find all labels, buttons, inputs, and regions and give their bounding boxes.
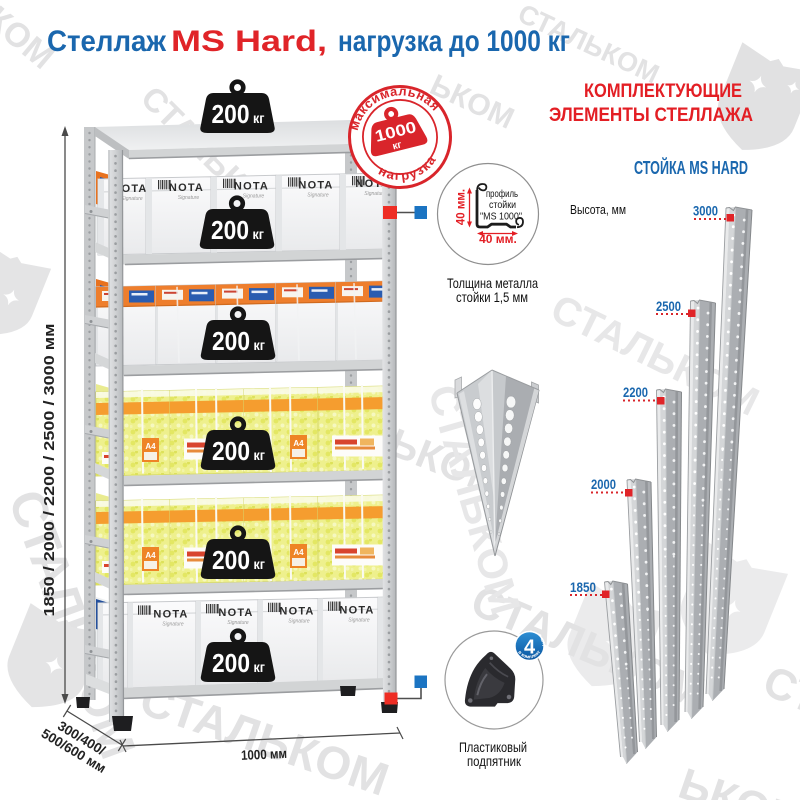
svg-text:нагрузка до 1000 кг: нагрузка до 1000 кг <box>338 25 570 58</box>
svg-text:A4: A4 <box>145 442 156 451</box>
svg-text:A4: A4 <box>293 439 304 448</box>
svg-text:A4: A4 <box>145 551 156 560</box>
svg-text:Signature: Signature <box>348 618 370 624</box>
svg-text:КОМПЛЕКТУЮЩИЕ: КОМПЛЕКТУЮЩИЕ <box>584 81 742 102</box>
svg-text:3000: 3000 <box>693 204 718 219</box>
svg-text:NOTA: NOTA <box>218 607 253 619</box>
svg-text:Высота, мм: Высота, мм <box>570 202 626 217</box>
svg-text:Signature: Signature <box>121 196 143 202</box>
svg-text:Стеллаж: Стеллаж <box>47 25 167 58</box>
svg-text:1850: 1850 <box>570 580 596 595</box>
svg-text:NOTA: NOTA <box>234 181 269 193</box>
svg-text:NOTA: NOTA <box>339 605 374 617</box>
svg-text:1000 мм: 1000 мм <box>241 746 288 763</box>
svg-text:стойки: стойки <box>489 199 516 211</box>
svg-text:СТОЙКА MS HARD: СТОЙКА MS HARD <box>634 157 748 178</box>
svg-text:NOTA: NOTA <box>298 179 333 191</box>
svg-text:"MS 1000": "MS 1000" <box>480 211 522 223</box>
svg-text:40 мм.: 40 мм. <box>479 232 517 246</box>
svg-text:Signature: Signature <box>288 619 310 625</box>
svg-text:1850 / 2000 / 2200 / 2500 / 30: 1850 / 2000 / 2200 / 2500 / 3000 мм <box>42 324 58 617</box>
svg-text:Signature: Signature <box>227 620 249 626</box>
svg-text:MS Hard,: MS Hard, <box>171 25 327 58</box>
svg-text:40 мм.: 40 мм. <box>456 189 468 225</box>
svg-text:NOTA: NOTA <box>153 608 188 620</box>
svg-text:ЭЛЕМЕНТЫ СТЕЛЛАЖА: ЭЛЕМЕНТЫ СТЕЛЛАЖА <box>549 105 753 126</box>
svg-text:2500: 2500 <box>656 299 681 314</box>
svg-text:Signature: Signature <box>178 195 200 201</box>
svg-text:стойки 1,5 мм: стойки 1,5 мм <box>456 289 528 305</box>
svg-text:Signature: Signature <box>162 621 184 627</box>
svg-text:NOTA: NOTA <box>279 606 314 618</box>
svg-text:NOTA: NOTA <box>169 182 204 194</box>
svg-text:подпятник: подпятник <box>467 753 522 769</box>
svg-text:A4: A4 <box>293 548 304 557</box>
svg-text:Signature: Signature <box>307 192 329 198</box>
svg-text:2000: 2000 <box>591 477 616 492</box>
svg-text:Signature: Signature <box>243 194 265 200</box>
svg-text:2200: 2200 <box>623 385 648 400</box>
